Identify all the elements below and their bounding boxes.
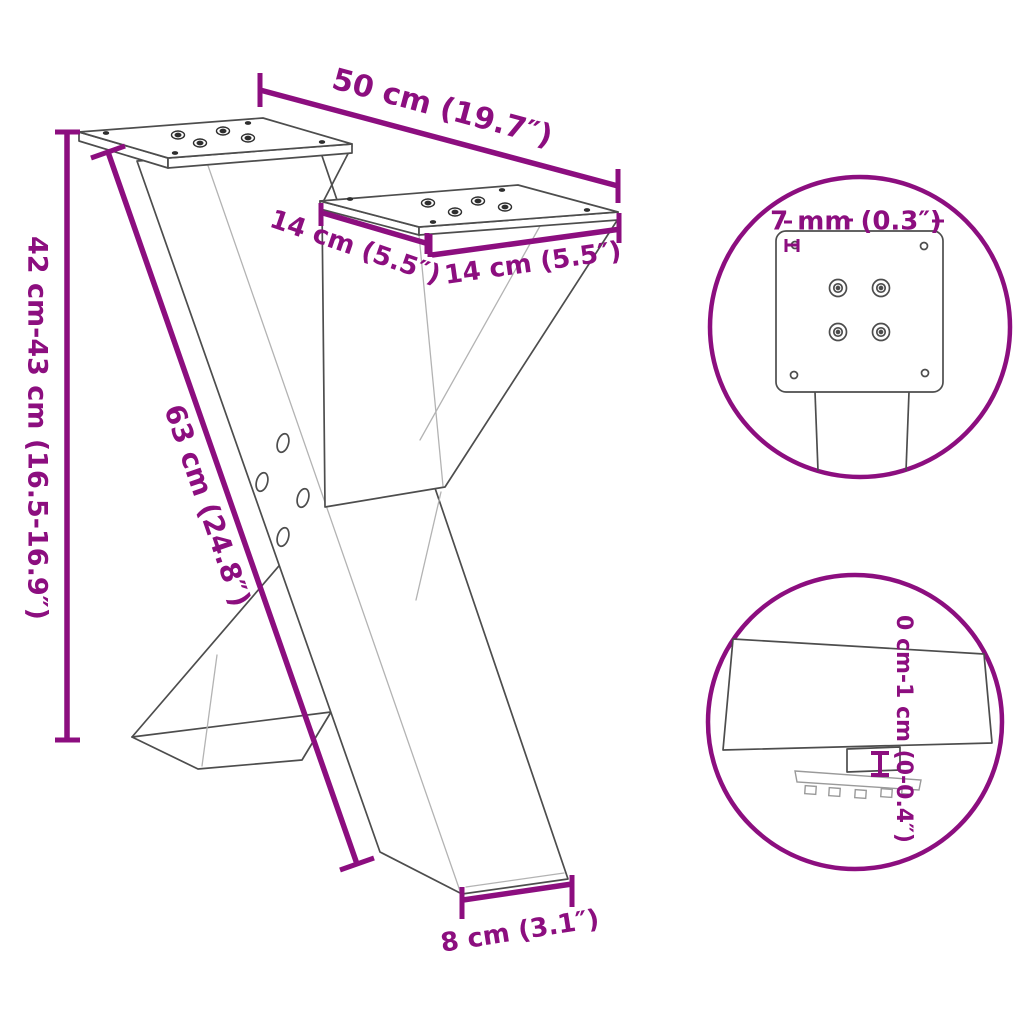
plate-thickness-label: 7 mm (0.3″) bbox=[770, 207, 942, 237]
diagram-canvas: 42 cm-43 cm (16.5-16.9″) 50 cm (19.7″) 6… bbox=[0, 0, 1024, 1024]
detail-plate-face bbox=[776, 231, 943, 392]
detail-circle-plate: 7 mm (0.3″) bbox=[710, 177, 1010, 477]
height-adjustment-label: 0 cm-1 cm (0-0.4″) bbox=[891, 615, 916, 843]
detail-leg-bottom bbox=[723, 639, 992, 750]
height-label: 42 cm-43 cm (16.5-16.9″) bbox=[22, 236, 53, 620]
dim-height bbox=[55, 132, 80, 740]
x-leg-dimension-diagram: 42 cm-43 cm (16.5-16.9″) 50 cm (19.7″) 6… bbox=[0, 0, 1024, 1024]
detail-circle-foot: 0 cm-1 cm (0-0.4″) bbox=[708, 575, 1002, 869]
